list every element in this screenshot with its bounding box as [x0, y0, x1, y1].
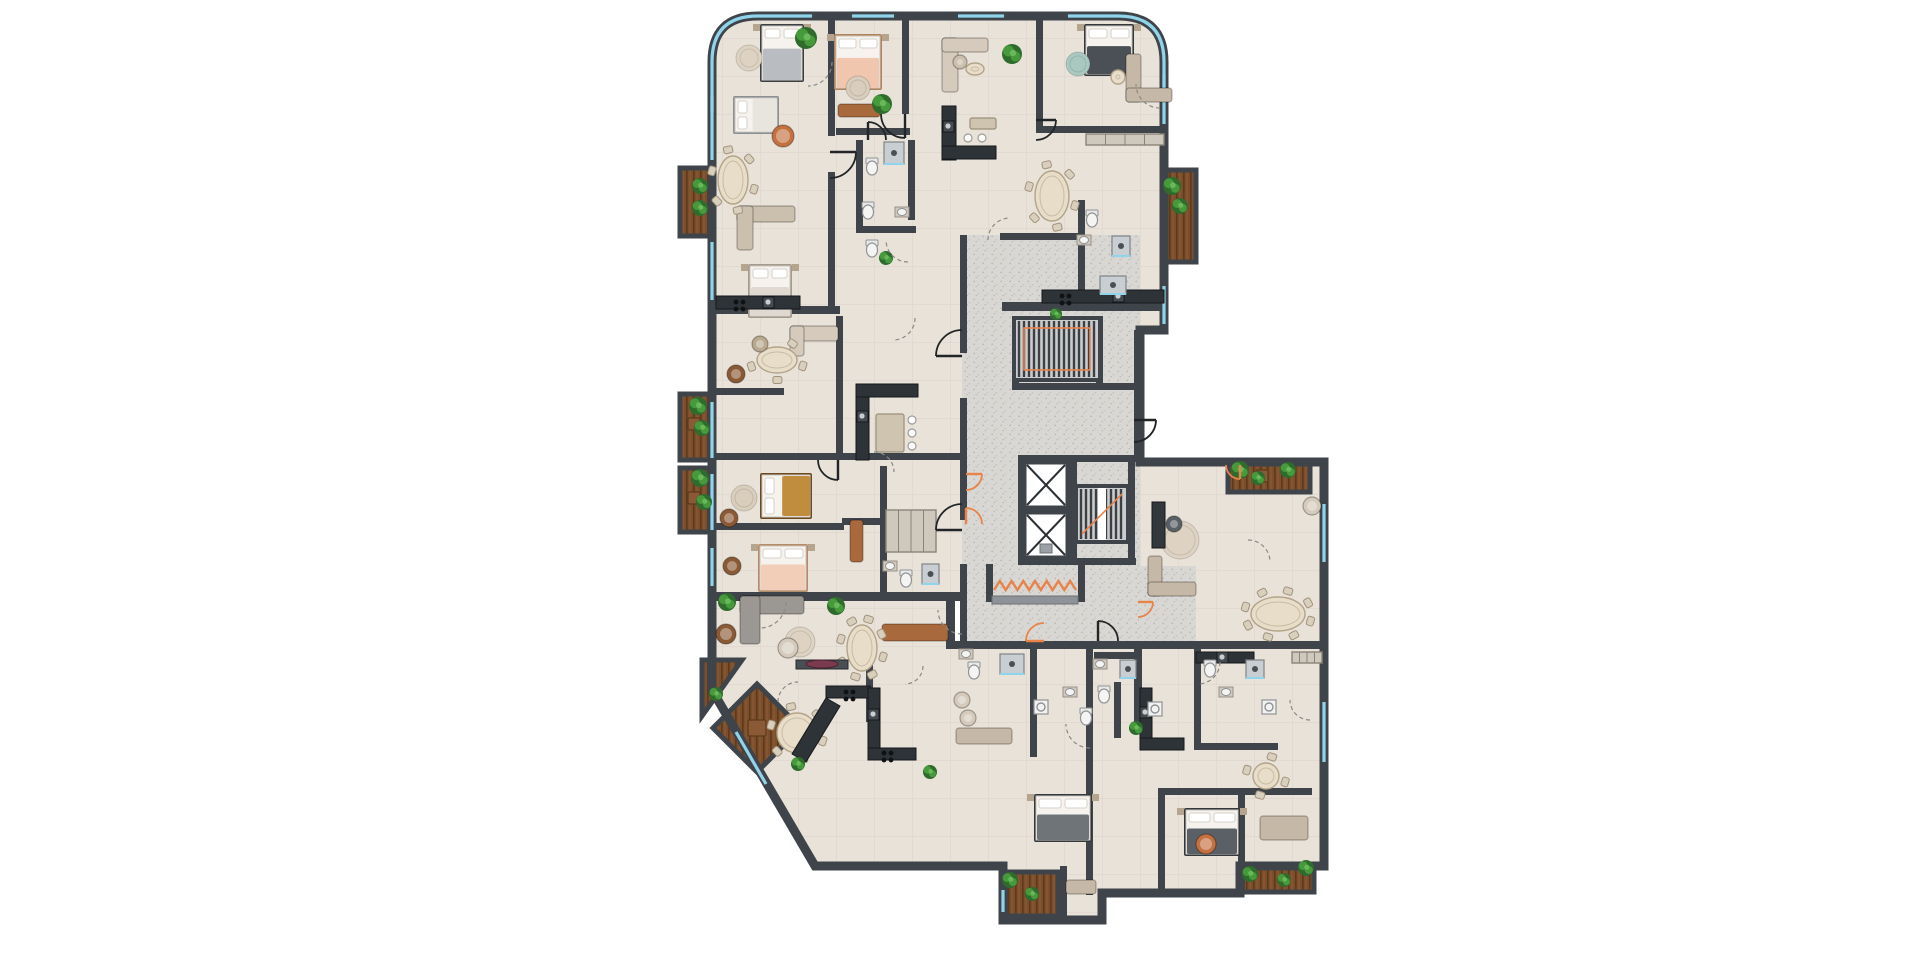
basin — [898, 209, 907, 216]
potted-plant-icon — [923, 765, 937, 779]
potted-plant-icon — [1298, 860, 1314, 876]
washer-body — [1034, 700, 1048, 714]
washing-machine — [1148, 702, 1162, 716]
elevator-shaft — [1024, 462, 1068, 508]
bed-pillow — [765, 478, 774, 494]
bathroom-sink — [1077, 235, 1091, 245]
sofa-section — [956, 728, 1012, 744]
burner — [1067, 301, 1072, 306]
bed-pillow — [738, 101, 747, 113]
armchair — [1196, 834, 1216, 854]
bed-pillow — [763, 549, 781, 558]
bed — [1027, 794, 1099, 842]
sofa-section — [1126, 88, 1172, 102]
potted-plant-icon — [709, 687, 723, 701]
armchair-cushion — [727, 561, 737, 571]
armchair-cushion — [724, 513, 734, 523]
foliage — [714, 691, 718, 695]
sink-drain — [870, 711, 875, 716]
foliage — [725, 598, 731, 604]
bed-blanket — [761, 564, 805, 590]
potted-plant-icon — [1025, 887, 1039, 901]
round-rug — [736, 45, 762, 71]
bed-blanket — [763, 49, 801, 80]
bed-nightstand — [827, 34, 834, 41]
sofa — [850, 520, 863, 562]
wall-segment — [1000, 233, 1082, 240]
wall-segment — [960, 564, 967, 644]
wall-segment — [1036, 16, 1043, 128]
wardrobe — [1292, 652, 1322, 663]
sofa-section — [942, 38, 988, 52]
bed-nightstand — [753, 24, 760, 31]
wall-segment — [1078, 200, 1085, 302]
armchair-cushion — [731, 369, 741, 379]
wardrobe — [1086, 134, 1164, 145]
sink-drain — [1219, 654, 1224, 659]
stool — [908, 416, 916, 424]
potted-plant-icon — [1002, 872, 1018, 888]
sofa-section — [882, 624, 948, 641]
toilet — [1080, 708, 1092, 725]
shower — [922, 564, 939, 584]
shower-drain — [1252, 666, 1258, 672]
toilet-bowl — [863, 205, 874, 219]
potted-plant-icon — [691, 469, 709, 487]
armchair-cushion — [1170, 520, 1178, 528]
armchair — [953, 55, 967, 69]
washer-body — [1262, 700, 1276, 714]
wall-segment — [836, 128, 910, 135]
desk — [1152, 502, 1165, 548]
island-top — [970, 118, 996, 129]
round-rug — [731, 485, 757, 511]
burner — [741, 307, 746, 312]
foliage — [698, 474, 704, 480]
potted-plant-icon — [872, 94, 892, 114]
table-top — [966, 63, 984, 75]
toilet-bowl — [969, 665, 980, 679]
armchair — [720, 509, 738, 527]
burner — [741, 300, 746, 305]
bed-pillow — [753, 269, 768, 278]
foliage — [1134, 725, 1138, 729]
potted-plant-icon — [1163, 177, 1181, 195]
basin — [1222, 689, 1231, 696]
outdoor-table — [748, 720, 766, 736]
shower — [1000, 654, 1024, 674]
armchair — [778, 638, 798, 658]
potted-plant-icon — [1277, 873, 1291, 887]
bed — [751, 544, 815, 592]
toilet — [866, 158, 878, 175]
shower-drain — [1009, 661, 1015, 667]
toilet — [866, 240, 878, 257]
bed — [733, 96, 779, 134]
burner — [851, 697, 856, 702]
toilet — [900, 570, 912, 587]
foliage — [1256, 475, 1260, 479]
potted-plant-icon — [1242, 866, 1258, 882]
bed-pillow — [1111, 29, 1129, 38]
bed-pillow — [1039, 799, 1061, 808]
toilet-bowl — [867, 243, 878, 257]
dining-chair — [786, 702, 796, 711]
elevator-mech-box — [1040, 544, 1052, 553]
armchair — [1166, 516, 1182, 532]
toilet — [862, 202, 874, 219]
bed-blanket — [753, 99, 777, 131]
potted-plant-icon — [1050, 308, 1062, 320]
kitchen-counter — [856, 384, 918, 397]
sofa-section — [1066, 880, 1096, 894]
bed-pillow — [785, 549, 803, 558]
armchair-cushion — [964, 714, 972, 722]
foliage — [928, 769, 932, 773]
potted-plant-icon — [1251, 471, 1265, 485]
armchair-cushion — [776, 129, 790, 143]
toilet — [1204, 660, 1216, 677]
sofa — [1066, 880, 1096, 894]
foliage — [804, 33, 811, 40]
wall-segment — [856, 226, 916, 233]
burner — [889, 751, 894, 756]
armchair-cushion — [720, 628, 732, 640]
sofa — [882, 624, 948, 641]
burner — [1067, 294, 1072, 299]
sink-drain — [765, 299, 770, 304]
potted-plant-icon — [718, 593, 736, 611]
foliage — [1304, 865, 1309, 870]
sink-drain — [1142, 709, 1147, 714]
armchair-cushion — [1200, 838, 1212, 850]
foliage — [884, 255, 888, 259]
burner — [734, 300, 739, 305]
stool — [908, 442, 916, 450]
potted-plant-icon — [827, 597, 845, 615]
shower-drain — [891, 150, 897, 156]
armchair — [727, 365, 745, 383]
shower — [1112, 236, 1130, 256]
potted-plant-icon — [795, 27, 817, 49]
burner — [882, 758, 887, 763]
bed-pillow — [772, 269, 787, 278]
basin — [1096, 661, 1105, 668]
toilet — [968, 662, 980, 679]
toilet-bowl — [1205, 663, 1216, 677]
floor-plan-page — [0, 0, 1920, 960]
foliage — [796, 761, 800, 765]
foliage — [1030, 891, 1034, 895]
shower — [1246, 660, 1264, 678]
sofa-section — [740, 596, 760, 644]
foliage — [698, 183, 703, 188]
kitchen-sink-icon — [763, 297, 774, 308]
sink-drain — [945, 123, 950, 128]
dining-chair — [733, 206, 743, 215]
table-top — [1111, 70, 1125, 84]
foliage — [696, 402, 702, 408]
wall-segment — [842, 518, 886, 525]
island-top — [876, 414, 904, 452]
sofa — [1260, 816, 1308, 840]
wall-segment — [828, 172, 835, 314]
foliage — [1008, 877, 1013, 882]
wall-segment — [1194, 743, 1278, 750]
round-rug — [1066, 52, 1090, 76]
coffee-table — [1111, 70, 1125, 84]
armchair — [723, 557, 741, 575]
stool — [908, 429, 916, 437]
foliage — [1286, 467, 1291, 472]
stool — [978, 134, 986, 142]
armchair-cushion — [957, 59, 963, 65]
bathroom-sink — [959, 649, 973, 659]
bathroom-sink — [895, 207, 909, 217]
bed-blanket — [782, 476, 810, 516]
dining-chair — [1042, 160, 1052, 169]
bed — [741, 264, 799, 318]
basin — [1066, 689, 1075, 696]
round-rug — [846, 76, 870, 100]
basin — [962, 651, 971, 658]
dining-chair — [773, 376, 782, 383]
bed-pillow — [1065, 799, 1087, 808]
bed-nightstand — [808, 544, 815, 551]
bed-pillow — [1214, 813, 1235, 822]
foliage — [1170, 182, 1176, 188]
dining-chair — [723, 145, 733, 154]
bed-pillow — [765, 498, 774, 514]
bed-nightstand — [1134, 24, 1141, 31]
bed-nightstand — [751, 544, 758, 551]
bed-pillow — [765, 29, 780, 38]
toilet-bowl — [1099, 689, 1110, 703]
wall-segment — [1012, 383, 1136, 390]
shower — [1100, 276, 1126, 294]
potted-plant-icon — [1172, 198, 1188, 214]
wall-segment — [946, 641, 1326, 649]
foliage — [834, 602, 840, 608]
foliage — [1178, 203, 1183, 208]
wardrobe — [886, 510, 936, 552]
washing-machine — [1034, 700, 1048, 714]
wall-segment — [1086, 649, 1093, 895]
kitchen-sink-icon — [857, 411, 868, 422]
dining-chair — [1052, 223, 1062, 232]
kitchen-sink-icon — [868, 709, 879, 720]
toilet-bowl — [1087, 213, 1098, 227]
stair-run — [1014, 318, 1100, 380]
armchair-cushion — [756, 340, 764, 348]
bathroom-sink — [1219, 687, 1233, 697]
foliage — [698, 205, 703, 210]
toilet — [1086, 210, 1098, 227]
shower-drain — [928, 571, 934, 577]
potted-plant-icon — [1002, 44, 1022, 64]
sofa-section — [1148, 582, 1196, 596]
bed-nightstand — [1240, 808, 1247, 815]
bed-nightstand — [1027, 794, 1034, 801]
bed-pillow — [1189, 813, 1210, 822]
potted-plant-icon — [879, 251, 893, 265]
kitchen-island — [876, 414, 916, 452]
potted-plant-icon — [1129, 721, 1143, 735]
armchair — [716, 624, 736, 644]
potted-plant-icon — [696, 494, 712, 510]
washer-body — [1148, 702, 1162, 716]
coffee-table — [966, 63, 984, 75]
bed-pillow — [839, 39, 856, 48]
wall-segment — [856, 140, 863, 232]
stair-run — [1076, 486, 1128, 542]
washing-machine — [1262, 700, 1276, 714]
shower-drain — [1118, 243, 1124, 249]
sink-drain — [859, 413, 864, 418]
kitchen-counter — [942, 146, 996, 159]
potted-plant-icon — [692, 178, 708, 194]
toilet-bowl — [901, 573, 912, 587]
toilet — [1098, 686, 1110, 703]
bed-nightstand — [1077, 24, 1084, 31]
bed-pillow — [860, 39, 877, 48]
foliage — [1282, 877, 1286, 881]
toilet-bowl — [1081, 711, 1092, 725]
foliage — [1248, 871, 1253, 876]
bed-nightstand — [1177, 808, 1184, 815]
potted-plant-icon — [694, 420, 710, 436]
armchair — [954, 692, 970, 708]
armchair — [960, 710, 976, 726]
burner — [844, 690, 849, 695]
bed-nightstand — [1092, 794, 1099, 801]
bed-nightstand — [792, 264, 799, 271]
bed-nightstand — [741, 264, 748, 271]
burner — [882, 751, 887, 756]
basin — [1080, 237, 1089, 244]
foliage — [880, 100, 886, 106]
wall-segment — [1078, 564, 1085, 602]
wall-segment — [1194, 649, 1201, 747]
foliage — [1055, 311, 1059, 315]
wall-segment — [712, 453, 844, 460]
foliage — [1010, 50, 1016, 56]
wall-segment — [712, 388, 784, 395]
burner — [1060, 301, 1065, 306]
kitchen-counter — [716, 296, 800, 309]
potted-plant-icon — [791, 757, 805, 771]
kitchen-sink-icon — [943, 121, 954, 132]
bed-pillow — [1089, 29, 1107, 38]
wall-segment — [1158, 788, 1312, 795]
wall-segment — [1158, 795, 1165, 893]
table-runner — [806, 660, 838, 668]
foliage — [702, 499, 707, 504]
bathroom-sink — [1093, 659, 1107, 669]
kitchen-counter — [1140, 738, 1184, 750]
apartment-floor-plan — [0, 0, 1920, 960]
stool — [964, 134, 972, 142]
burner — [889, 758, 894, 763]
burner — [844, 697, 849, 702]
building-outline-step — [1140, 330, 1164, 462]
bed-blanket — [1037, 814, 1089, 840]
toilet-bowl — [867, 161, 878, 175]
armchair — [1303, 497, 1321, 515]
bed-blanket — [1087, 46, 1131, 74]
shower — [884, 142, 904, 164]
wall-segment — [1114, 682, 1121, 738]
wall-segment — [960, 235, 967, 353]
bed — [760, 473, 812, 519]
wall-segment — [1094, 652, 1138, 659]
shower — [1120, 660, 1136, 678]
kitchen-sink-icon — [1217, 652, 1228, 663]
armchair-cushion — [958, 696, 966, 704]
armchair-cushion — [1307, 501, 1317, 511]
shower-drain — [1125, 666, 1131, 672]
foliage — [700, 425, 705, 430]
wall-segment — [902, 16, 909, 114]
potted-plant-icon — [692, 200, 708, 216]
burner — [1060, 294, 1065, 299]
balcony-deck-bar — [992, 596, 1078, 604]
shower-drain — [1110, 282, 1116, 288]
potted-plant-icon — [689, 397, 707, 415]
sofa-section — [1260, 816, 1308, 840]
armchair-cushion — [782, 642, 794, 654]
burner — [851, 690, 856, 695]
sofa-section — [850, 520, 863, 562]
bed-pillow — [738, 117, 747, 129]
armchair — [752, 336, 768, 352]
armchair — [772, 125, 794, 147]
basin — [886, 563, 895, 570]
bed-nightstand — [882, 34, 889, 41]
potted-plant-icon — [1280, 462, 1296, 478]
table-top — [1253, 763, 1279, 789]
bathroom-sink — [1063, 687, 1077, 697]
burner — [734, 307, 739, 312]
bathroom-sink — [883, 561, 897, 571]
sofa — [956, 728, 1012, 744]
